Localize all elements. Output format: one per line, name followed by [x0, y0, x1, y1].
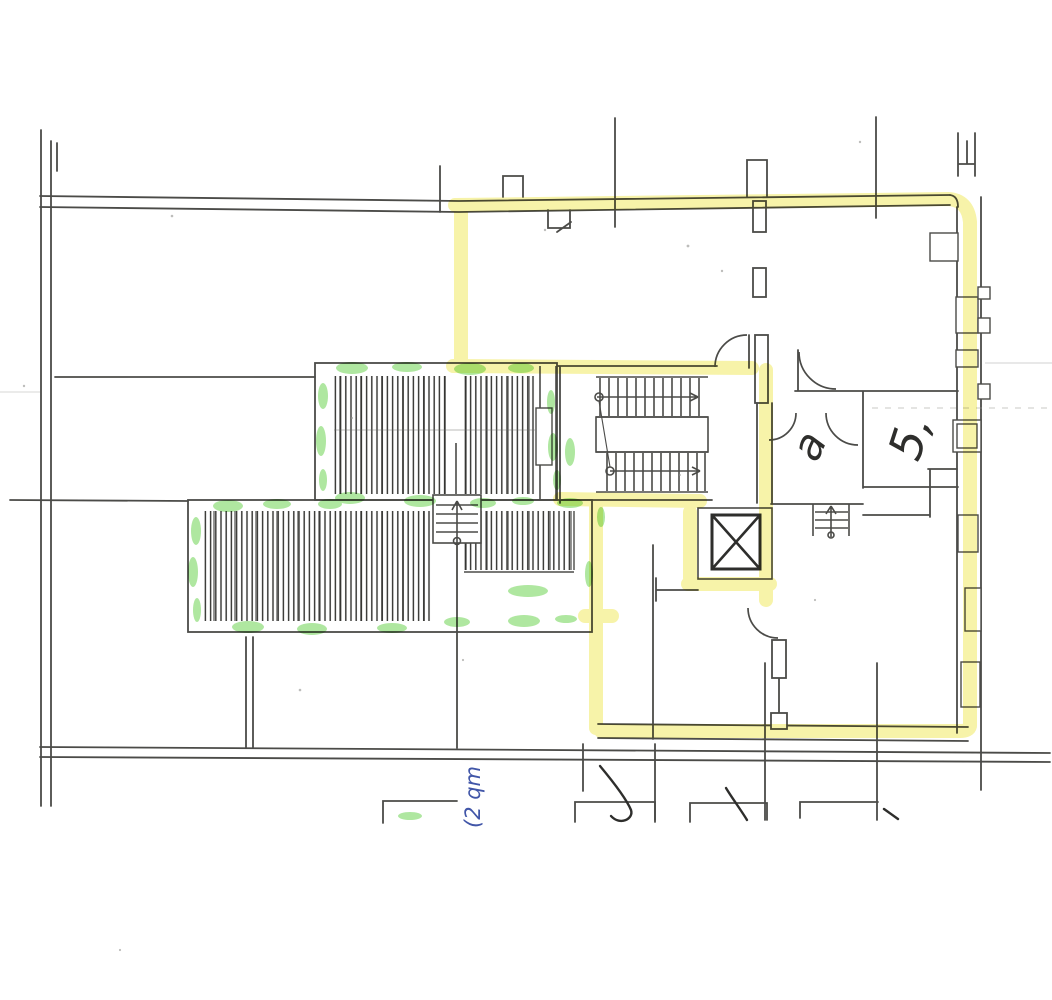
stair-treads-lower: [607, 453, 705, 491]
small-stair-right: [813, 504, 849, 538]
yellow-stair-top-wall: [453, 366, 752, 368]
left-wall: [41, 130, 57, 806]
checkmark: [600, 766, 631, 821]
door-swings: [715, 335, 858, 638]
chimney-bump-1: [503, 176, 523, 197]
door-arc: [748, 608, 778, 638]
scan-speckles: [23, 141, 861, 951]
lower-left-wall-segment: [246, 637, 253, 748]
lower-opening-1: [383, 801, 457, 823]
site-bottom-wall: [40, 747, 1050, 762]
roof-hatch-lower: [188, 500, 592, 632]
free-column: [753, 268, 766, 297]
pencil-checkmarks: [600, 766, 898, 821]
stair-landing: [596, 417, 708, 452]
lower-opening-4: [800, 802, 878, 818]
main-staircase: [595, 377, 708, 492]
wall-notch: [548, 210, 571, 232]
stair-hall-walls: [558, 366, 717, 503]
lower-opening-3: [690, 803, 767, 822]
handwritten-area-note: (2 qm: [461, 766, 485, 828]
chimney-bump-2: [747, 160, 767, 197]
mid-left-wall: [10, 500, 188, 501]
window-tab: [978, 287, 990, 299]
roof-hatch-upper: [315, 363, 557, 500]
handwritten-label-a: a: [781, 424, 836, 468]
stair-rail-lower: [610, 467, 700, 475]
checkmark: [726, 788, 747, 820]
elevator-x: [712, 515, 760, 569]
window-box: [930, 233, 958, 261]
handwritten-label-5: 5,: [877, 408, 942, 466]
door-arc: [799, 352, 836, 389]
window-tab: [978, 318, 990, 333]
closet-walls: [863, 469, 957, 517]
stair-rail-upper: [597, 393, 698, 401]
below-wall-stubs: [583, 744, 655, 820]
corner-structure: [958, 133, 975, 176]
window-tab: [978, 384, 990, 399]
scanned-floor-plan: a 5, (2 qm: [0, 0, 1052, 1000]
door-post: [772, 640, 786, 678]
floor-plan-svg: a 5, (2 qm: [0, 0, 1052, 1000]
checkmark: [884, 809, 898, 819]
lower-vertical-lines: [765, 663, 877, 820]
room-partitions: [795, 350, 958, 488]
door-arc: [826, 413, 858, 445]
